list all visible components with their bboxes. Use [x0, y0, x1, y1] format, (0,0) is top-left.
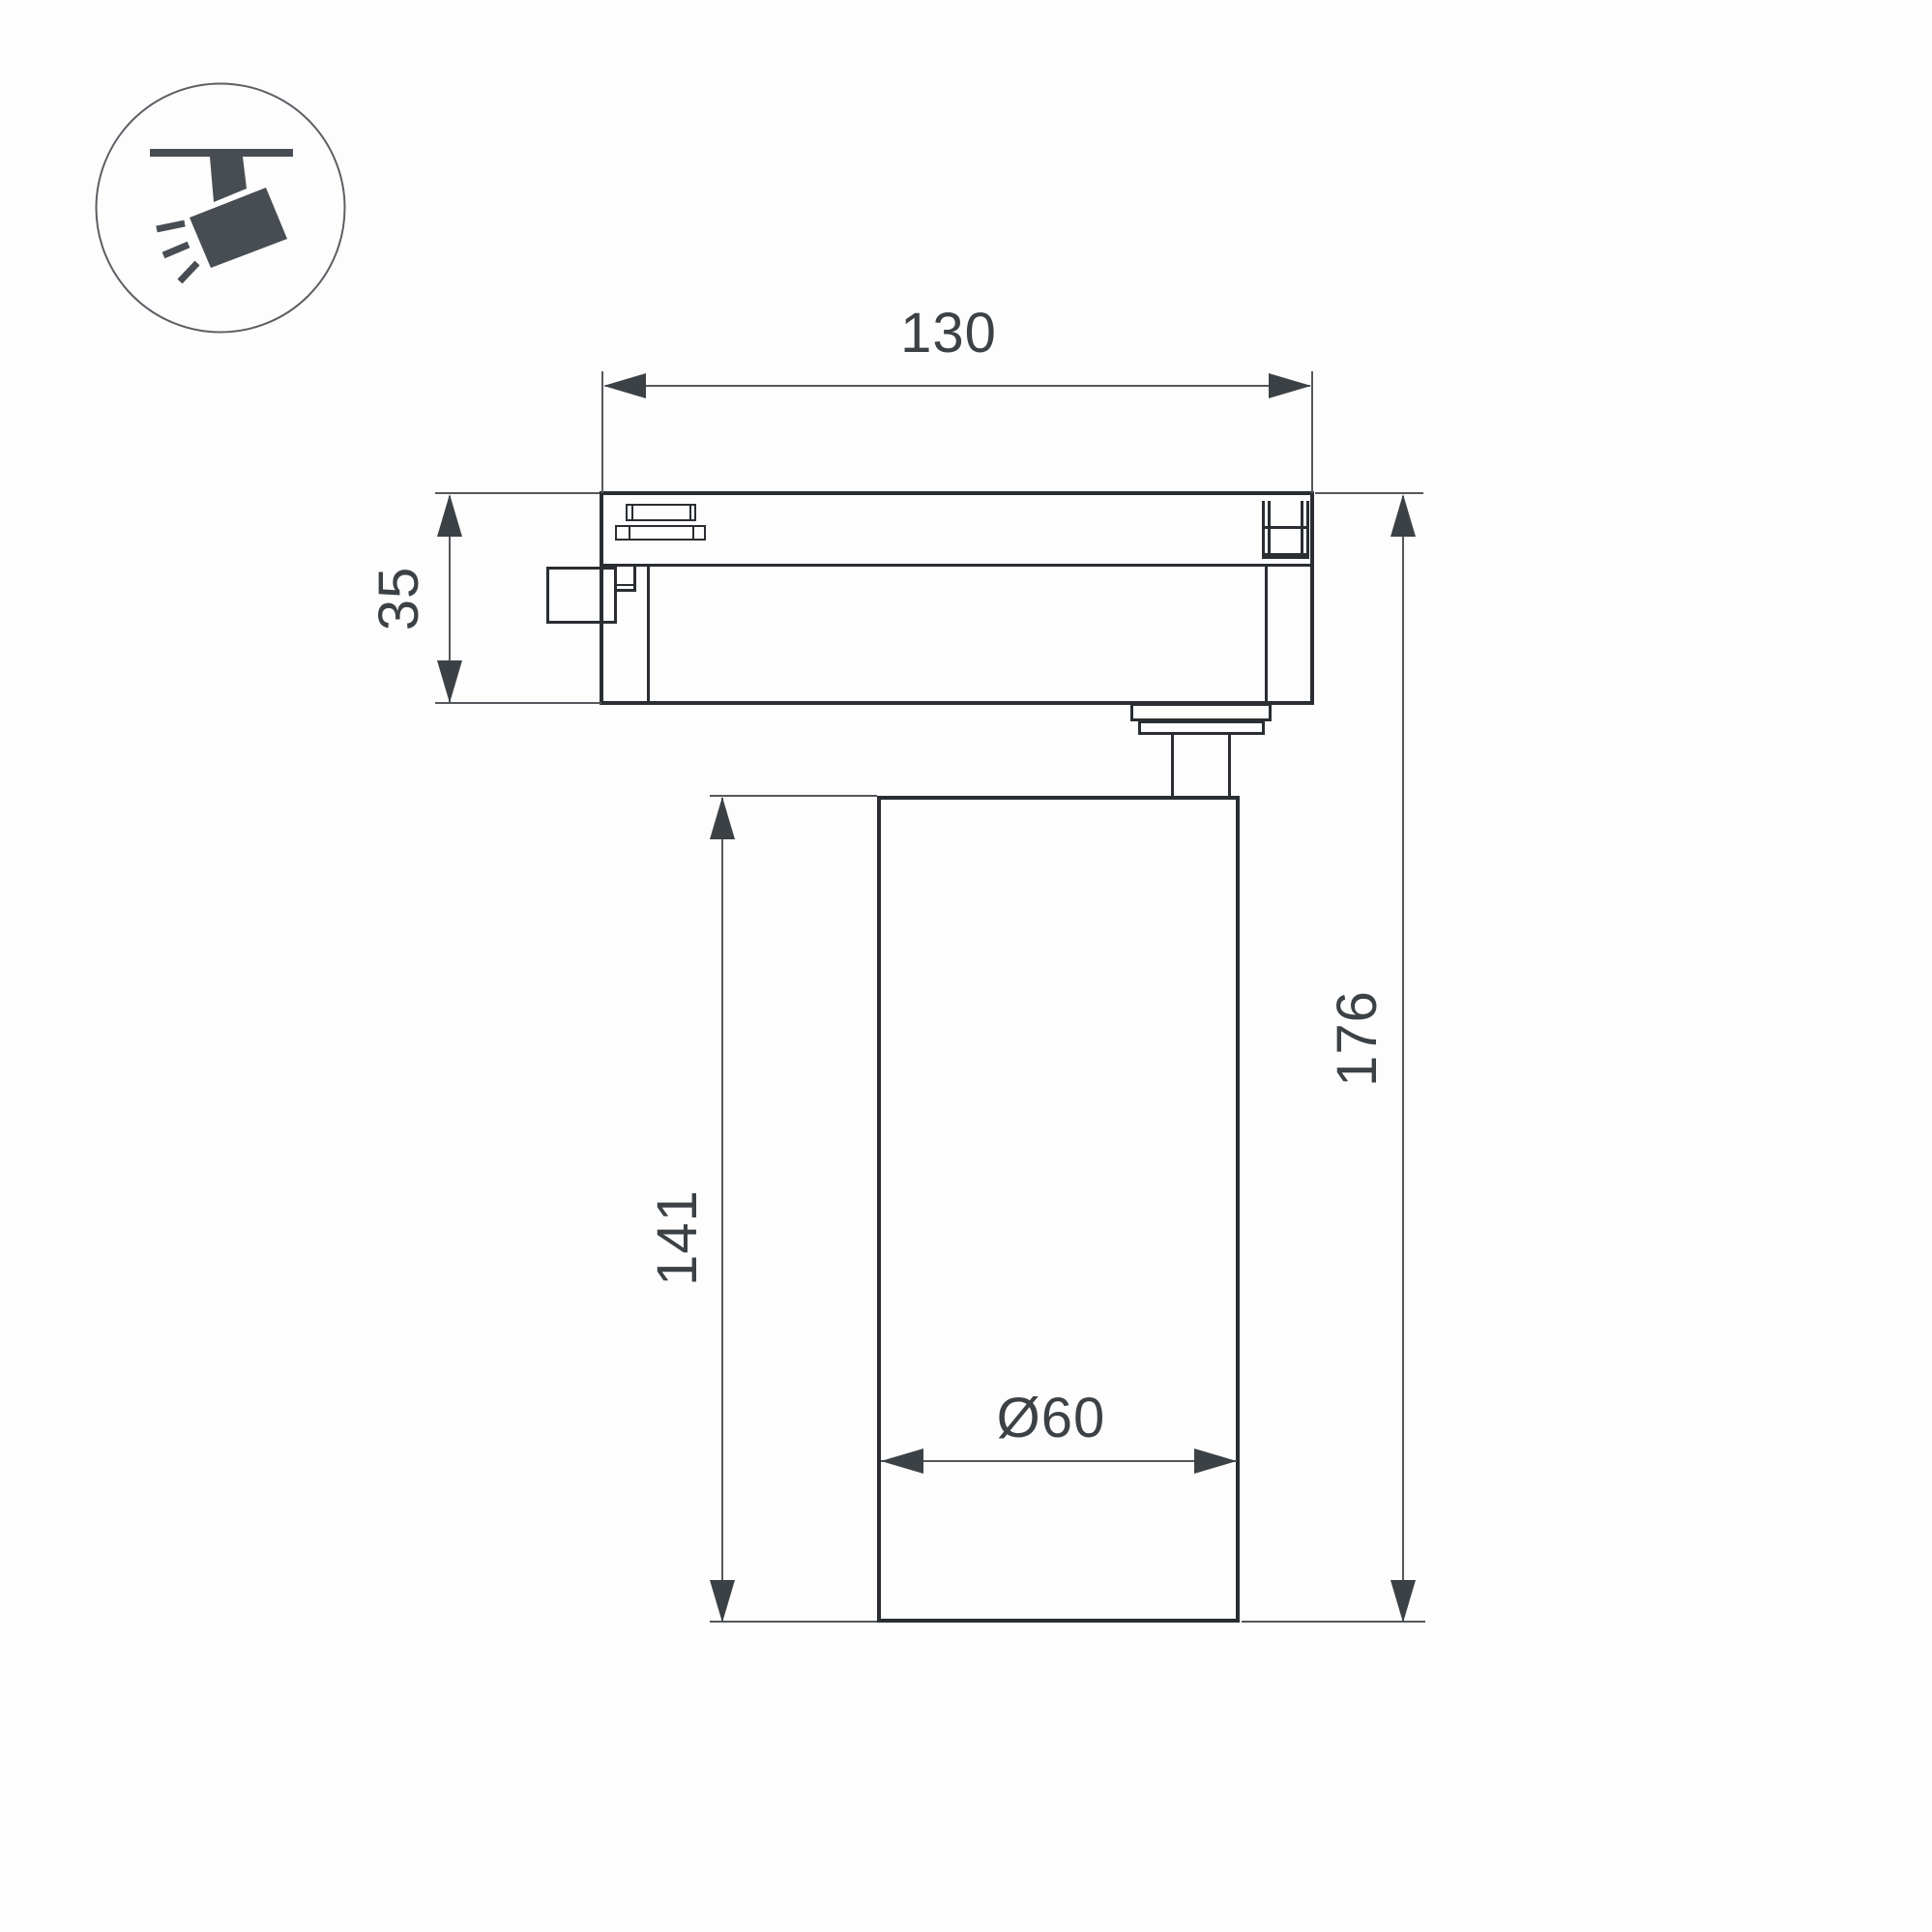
- arrowhead-130-left: [603, 373, 646, 398]
- arrowhead-141-top: [710, 797, 735, 839]
- adapter-clip-slot-upper: [626, 504, 696, 521]
- dim-line-60: [881, 1460, 1237, 1462]
- arrowhead-176-top: [1390, 494, 1416, 537]
- dim-label-adapter-height: 35: [375, 526, 424, 671]
- dim-label-body-height: 141: [654, 1165, 702, 1310]
- hinge-plate-lower: [1138, 720, 1265, 735]
- icon-mount-stem: [210, 157, 247, 202]
- lever-step-line-2: [617, 589, 636, 592]
- arrowhead-60-right: [1194, 1449, 1237, 1474]
- lever-step-line-1: [617, 584, 634, 586]
- clip-upper-divider-right: [689, 506, 691, 519]
- adapter-right-cap-line: [1265, 567, 1268, 701]
- arrowhead-35-top: [437, 494, 462, 537]
- dim-label-body-diameter: Ø60: [954, 1390, 1148, 1447]
- dim-line-130: [605, 385, 1310, 387]
- arrowhead-60-left: [881, 1449, 923, 1474]
- arrowhead-35-bottom: [437, 660, 462, 703]
- adapter-mid-divider: [601, 564, 1313, 567]
- contact-bottom-bar: [1262, 553, 1309, 559]
- dim-line-141: [721, 798, 723, 1621]
- icon-track-bar: [150, 149, 293, 157]
- icon-light-ray-2: [163, 245, 189, 255]
- technical-drawing-canvas: 130 35 141 176 Ø60: [0, 0, 1932, 1932]
- icon-light-ray-3: [180, 263, 197, 281]
- adapter-left-cap-line: [647, 567, 650, 701]
- contact-middle-bar: [1265, 526, 1306, 529]
- track-light-icon-svg: [95, 82, 346, 334]
- lamp-body-outline: [877, 796, 1240, 1623]
- dim-label-total-height: 176: [1333, 966, 1382, 1111]
- arrowhead-176-bottom: [1390, 1580, 1416, 1623]
- arrowhead-141-bottom: [710, 1580, 735, 1623]
- adapter-top-edge: [600, 491, 1314, 495]
- clip-upper-divider-left: [631, 506, 633, 519]
- ext-line-130-right: [1311, 371, 1313, 493]
- hinge-plate-upper: [1130, 703, 1272, 721]
- icon-lamp-body: [190, 188, 287, 268]
- stem-left-edge: [1171, 734, 1174, 797]
- arrowhead-130-right: [1269, 373, 1311, 398]
- stem-right-edge: [1228, 734, 1231, 797]
- dim-label-adapter-width: 130: [852, 306, 1045, 362]
- clip-lower-divider-right: [692, 527, 694, 539]
- dim-line-176: [1402, 496, 1404, 1621]
- contact-right-bar-outer: [1306, 501, 1309, 556]
- locking-lever: [546, 567, 617, 624]
- track-light-icon: [95, 82, 346, 334]
- adapter-right-edge: [1310, 491, 1314, 705]
- icon-light-ray-1: [157, 223, 185, 229]
- clip-lower-divider-left: [629, 527, 630, 539]
